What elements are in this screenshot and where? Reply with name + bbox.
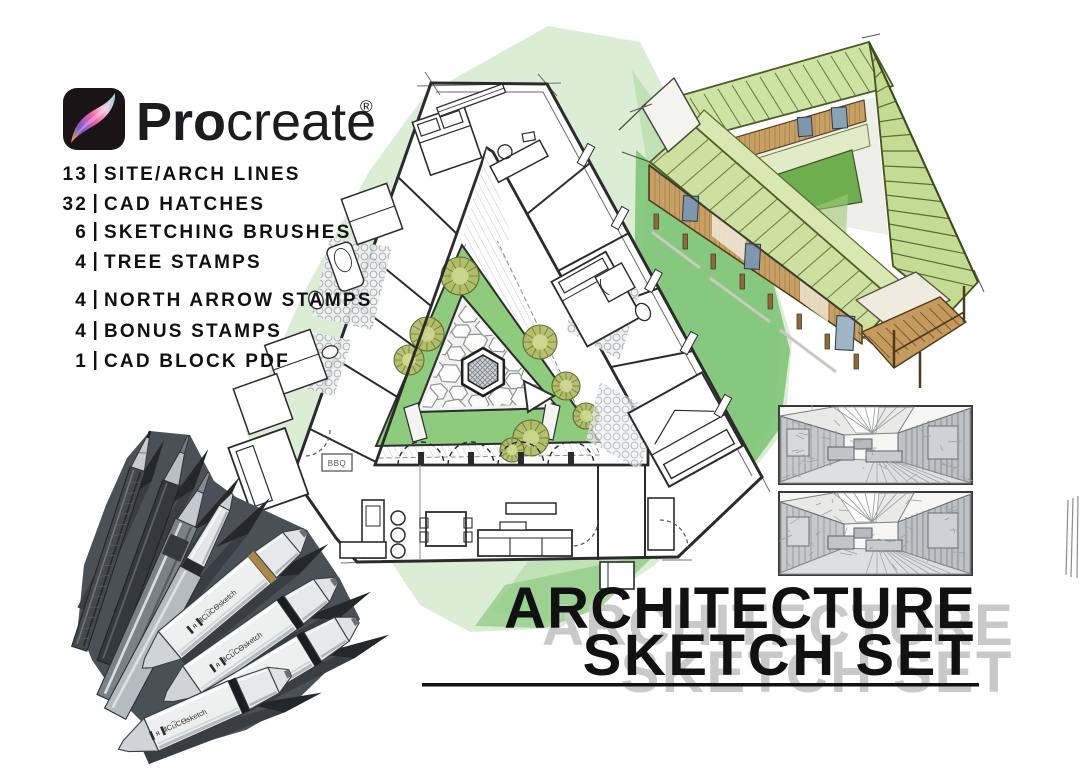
svg-text:6: 6 [75, 222, 88, 243]
svg-text:4: 4 [75, 252, 88, 273]
svg-text:13: 13 [62, 164, 88, 185]
svg-text:CAD BLOCK PDF: CAD BLOCK PDF [104, 351, 290, 372]
svg-text:SITE/ARCH LINES: SITE/ARCH LINES [104, 164, 301, 185]
svg-text:SKETCH SET: SKETCH SET [583, 623, 976, 688]
svg-text:32: 32 [62, 194, 88, 215]
svg-text:4: 4 [75, 321, 88, 342]
svg-text:TREE STAMPS: TREE STAMPS [104, 252, 262, 273]
svg-text:1: 1 [75, 351, 88, 372]
svg-text:®: ® [360, 97, 373, 116]
svg-text:Procreate: Procreate [136, 92, 376, 152]
svg-text:CAD HATCHES: CAD HATCHES [104, 194, 265, 215]
svg-text:SKETCHING BRUSHES: SKETCHING BRUSHES [104, 222, 351, 243]
svg-text:NORTH ARROW STAMPS: NORTH ARROW STAMPS [104, 290, 373, 311]
svg-text:4: 4 [75, 290, 88, 311]
svg-text:BBQ: BBQ [328, 459, 346, 468]
svg-text:BONUS STAMPS: BONUS STAMPS [104, 321, 282, 342]
